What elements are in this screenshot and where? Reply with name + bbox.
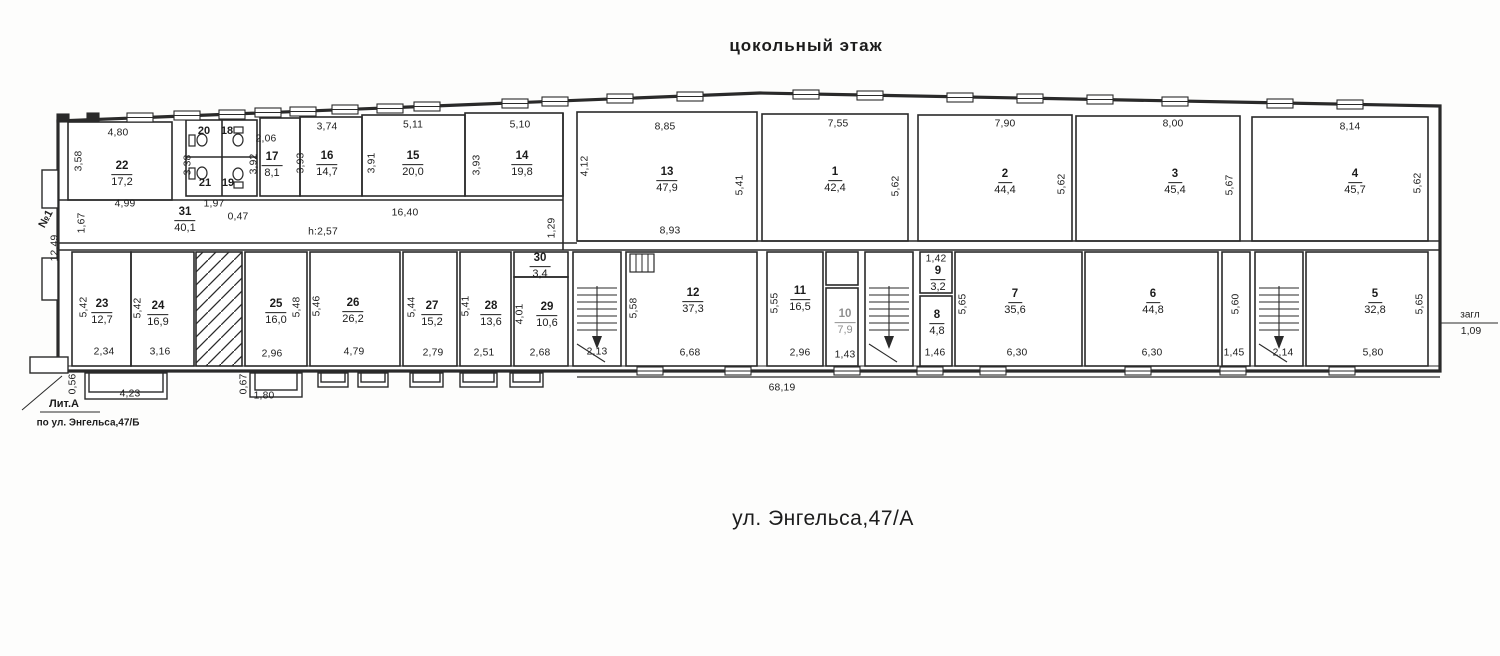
dimension-label: 6,68: [680, 348, 701, 359]
street-side-label: по ул. Энгельса,47/Б: [37, 418, 140, 429]
dimension-label: 7,90: [995, 119, 1016, 130]
dimension-label: 16,40: [392, 208, 419, 219]
room-label: 445,7: [1344, 164, 1365, 196]
dimension-label: h:2,57: [308, 227, 338, 238]
dimension-label: 2,34: [94, 347, 115, 358]
dimension-label: 4,79: [344, 347, 365, 358]
dimension-label: 5,41: [461, 296, 472, 317]
depth-note-value: 1,09: [1461, 325, 1481, 337]
room-label: 2312,7: [91, 294, 112, 326]
ramp-hatch: [196, 252, 242, 366]
dimension-label: 8,00: [1163, 119, 1184, 130]
room-label: 1347,9: [656, 162, 677, 194]
dimension-label: 2,14: [1273, 348, 1294, 359]
dimension-label: 5,46: [312, 296, 323, 317]
room-label: 84,8: [929, 305, 944, 337]
dimension-label: 2,06: [256, 134, 277, 145]
dimension-label: 5,58: [629, 298, 640, 319]
room-label: 2516,0: [265, 294, 286, 326]
dimension-label: 6,30: [1142, 348, 1163, 359]
room-label: 178,1: [262, 147, 283, 179]
dimension-label: 8,14: [1340, 122, 1361, 133]
floor-plan-page: цокольный этаж ул. Энгельса,47/А Лит.А п…: [0, 0, 1500, 656]
dimension-label: 68,19: [769, 383, 796, 394]
dimension-label: 5,65: [1415, 294, 1426, 315]
dimension-label: 3,74: [317, 122, 338, 133]
room-label: 2910,6: [536, 297, 557, 329]
dimension-label: 5,60: [1231, 294, 1242, 315]
dimension-label: 3,38: [183, 155, 194, 176]
dimension-label: 0,67: [239, 374, 250, 395]
dimension-label: 3,92: [249, 154, 260, 175]
dimension-label: 1,43: [835, 350, 856, 361]
dimension-label: 2,79: [423, 348, 444, 359]
dimension-label: 5,62: [1057, 174, 1068, 195]
dimension-label: 5,62: [1413, 173, 1424, 194]
room-label: 142,4: [824, 162, 845, 194]
street-address-label: ул. Энгельса,47/А: [732, 507, 914, 531]
dimension-label: 2,68: [530, 348, 551, 359]
room-label: 2715,2: [421, 296, 442, 328]
dimension-label: 5,42: [79, 297, 90, 318]
depth-note-label: загл: [1460, 310, 1479, 321]
dimension-label: 2,96: [790, 348, 811, 359]
dimension-label: 1,45: [1224, 348, 1245, 359]
dimension-label: 3,16: [150, 347, 171, 358]
dimension-label: 4,80: [108, 128, 129, 139]
dimension-label: 5,55: [770, 293, 781, 314]
dimension-label: 5,67: [1225, 175, 1236, 196]
dimension-label: 5,65: [958, 294, 969, 315]
dimension-label: 8,85: [655, 122, 676, 133]
dimension-label: 4,01: [515, 304, 526, 325]
porches: [85, 373, 543, 399]
dimension-label: 8,93: [660, 226, 681, 237]
room-label: 303,4: [530, 248, 551, 280]
dimension-label: 12,49: [50, 235, 61, 262]
dimension-label: 1,29: [547, 218, 558, 239]
room-label: 2416,9: [147, 296, 168, 328]
dimension-label: 5,42: [133, 298, 144, 319]
room-label: 93,2: [930, 261, 945, 293]
room-label: 532,8: [1364, 284, 1385, 316]
dimension-label: 3,93: [472, 155, 483, 176]
page-title: цокольный этаж: [729, 36, 882, 56]
dimension-label: 1,46: [925, 348, 946, 359]
dimension-label: 2,13: [587, 347, 608, 358]
dimension-label: 1,42: [926, 254, 947, 265]
room-label: 735,6: [1004, 284, 1025, 316]
room-label: 3140,1: [174, 202, 195, 234]
wc-room-label: 18: [221, 125, 233, 137]
room-label: 2626,2: [342, 293, 363, 325]
room-label: 1614,7: [316, 146, 337, 178]
wc-room-label: 21: [199, 177, 211, 189]
dimension-label: 1,97: [204, 199, 225, 210]
room-label: 244,4: [994, 164, 1015, 196]
dimension-label: 5,41: [735, 175, 746, 196]
dimension-label: 5,48: [292, 297, 303, 318]
dimension-label: 5,11: [403, 120, 423, 131]
dimension-label: 1,80: [254, 391, 275, 402]
wc-room-label: 20: [198, 125, 210, 137]
room-label: 1116,5: [789, 281, 810, 313]
room-label: 345,4: [1164, 164, 1185, 196]
dimension-label: 5,44: [407, 297, 418, 318]
dimension-label: 2,51: [474, 348, 495, 359]
dimension-label: 3,58: [74, 151, 85, 172]
room-label: 1520,0: [402, 146, 423, 178]
dimension-label: 7,55: [828, 119, 849, 130]
wc-room-label: 19: [222, 177, 234, 189]
dimension-label: 4,23: [120, 389, 141, 400]
dimension-label: 6,30: [1007, 348, 1028, 359]
room-label: 2217,2: [111, 156, 132, 188]
dimension-label: 4,12: [580, 156, 591, 177]
dimension-label: 0,47: [228, 212, 249, 223]
dimension-label: 5,62: [891, 176, 902, 197]
dimension-label: 4,99: [115, 199, 136, 210]
dimension-label: 5,80: [1363, 348, 1384, 359]
room-label: 2813,6: [480, 296, 501, 328]
room-label: 107,9: [835, 304, 856, 336]
building-letter-label: Лит.А: [49, 398, 79, 410]
dimension-label: 0,56: [68, 374, 79, 395]
dimension-label: 2,96: [262, 349, 283, 360]
floor-plan-drawing: [0, 0, 1500, 656]
dimension-label: 5,10: [510, 120, 531, 131]
room-label: 1419,8: [511, 146, 532, 178]
dimension-label: 1,67: [77, 213, 88, 234]
dimension-label: 3,91: [367, 153, 378, 174]
dimension-label: 3,93: [296, 153, 307, 174]
room-label: 1237,3: [682, 283, 703, 315]
room-label: 644,8: [1142, 284, 1163, 316]
